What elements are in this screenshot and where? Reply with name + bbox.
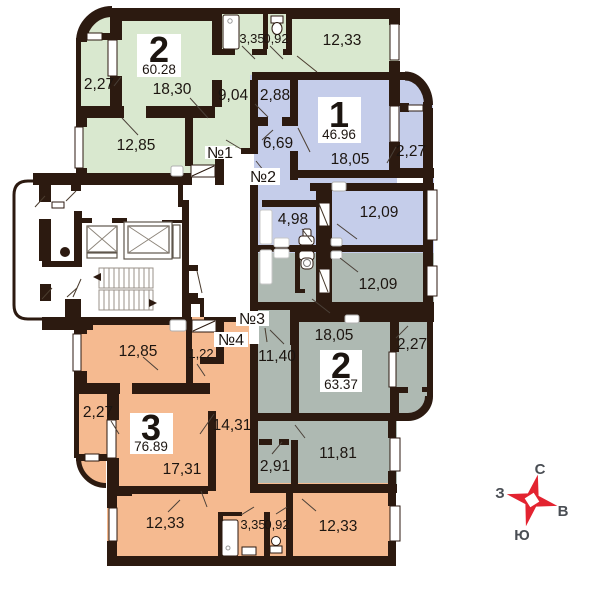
- svg-text:2,27: 2,27: [83, 404, 113, 421]
- svg-text:2,88: 2,88: [260, 87, 290, 104]
- svg-text:18,05: 18,05: [315, 327, 354, 344]
- svg-text:12,09: 12,09: [360, 204, 399, 221]
- svg-text:Ю: Ю: [514, 527, 529, 544]
- svg-text:18,05: 18,05: [331, 151, 370, 168]
- svg-text:12,85: 12,85: [117, 137, 156, 154]
- svg-text:18,30: 18,30: [153, 81, 192, 98]
- svg-text:2,27: 2,27: [84, 76, 114, 93]
- svg-text:В: В: [558, 503, 569, 520]
- svg-text:12,09: 12,09: [359, 276, 398, 293]
- svg-text:6,69: 6,69: [263, 135, 293, 152]
- svg-text:4,98: 4,98: [278, 211, 308, 228]
- svg-text:3,35: 3,35: [240, 517, 265, 532]
- svg-text:17,31: 17,31: [163, 461, 202, 478]
- svg-text:№4: №4: [218, 332, 244, 349]
- svg-text:№2: №2: [250, 169, 276, 186]
- svg-text:З: З: [495, 485, 504, 502]
- svg-text:1,22: 1,22: [188, 346, 213, 361]
- svg-text:14,31: 14,31: [213, 417, 252, 434]
- svg-text:12,85: 12,85: [119, 343, 158, 360]
- svg-text:2,91: 2,91: [260, 458, 290, 475]
- svg-text:№1: №1: [207, 145, 233, 162]
- svg-text:12,33: 12,33: [323, 32, 362, 49]
- svg-text:63.37: 63.37: [324, 377, 358, 392]
- svg-text:2,27: 2,27: [397, 336, 427, 353]
- svg-text:46.96: 46.96: [322, 127, 356, 142]
- svg-text:0,92: 0,92: [263, 31, 288, 46]
- svg-text:12,33: 12,33: [146, 515, 185, 532]
- svg-text:0,92: 0,92: [264, 517, 289, 532]
- svg-text:11,81: 11,81: [319, 445, 357, 462]
- svg-text:60.28: 60.28: [142, 62, 176, 77]
- svg-text:11,40: 11,40: [258, 348, 296, 365]
- svg-text:3,35: 3,35: [239, 31, 264, 46]
- svg-text:2,27: 2,27: [396, 143, 426, 160]
- svg-text:9,04: 9,04: [218, 87, 249, 104]
- svg-text:76.89: 76.89: [134, 439, 168, 454]
- svg-text:С: С: [535, 461, 546, 478]
- svg-text:№3: №3: [239, 311, 265, 328]
- svg-text:12,33: 12,33: [319, 518, 358, 535]
